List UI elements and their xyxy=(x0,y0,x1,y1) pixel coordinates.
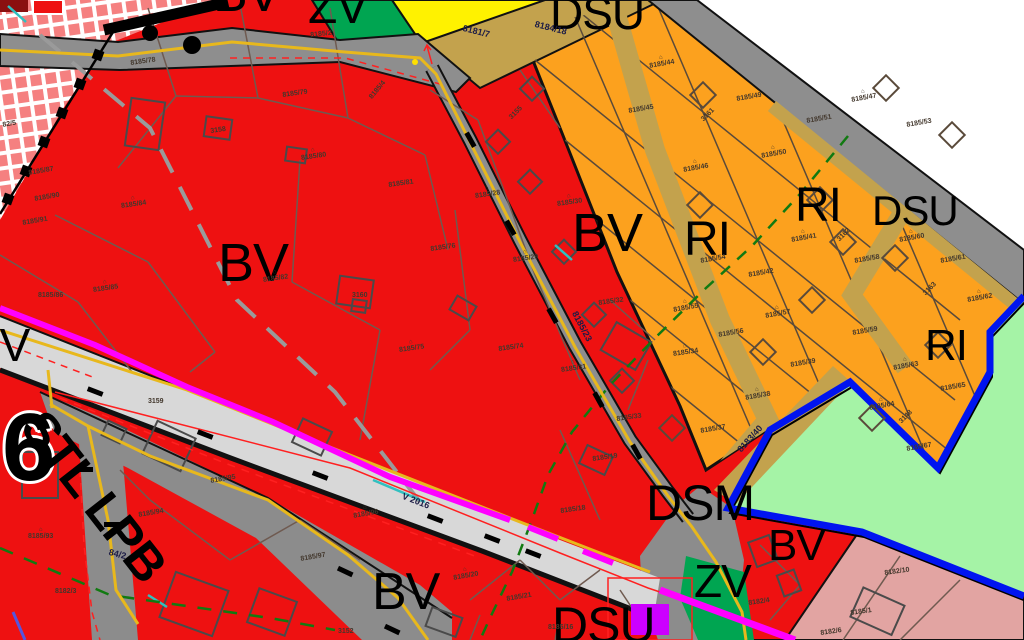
map-canvas xyxy=(0,0,1024,640)
parcel-in-hatch xyxy=(33,0,63,14)
zoning-map: BVZVDSUBVBVRIRIDSURIDSMBVZVBVDSUBV6STL L… xyxy=(0,0,1024,640)
yellow-node xyxy=(412,59,418,65)
purple-area-box xyxy=(631,604,669,635)
